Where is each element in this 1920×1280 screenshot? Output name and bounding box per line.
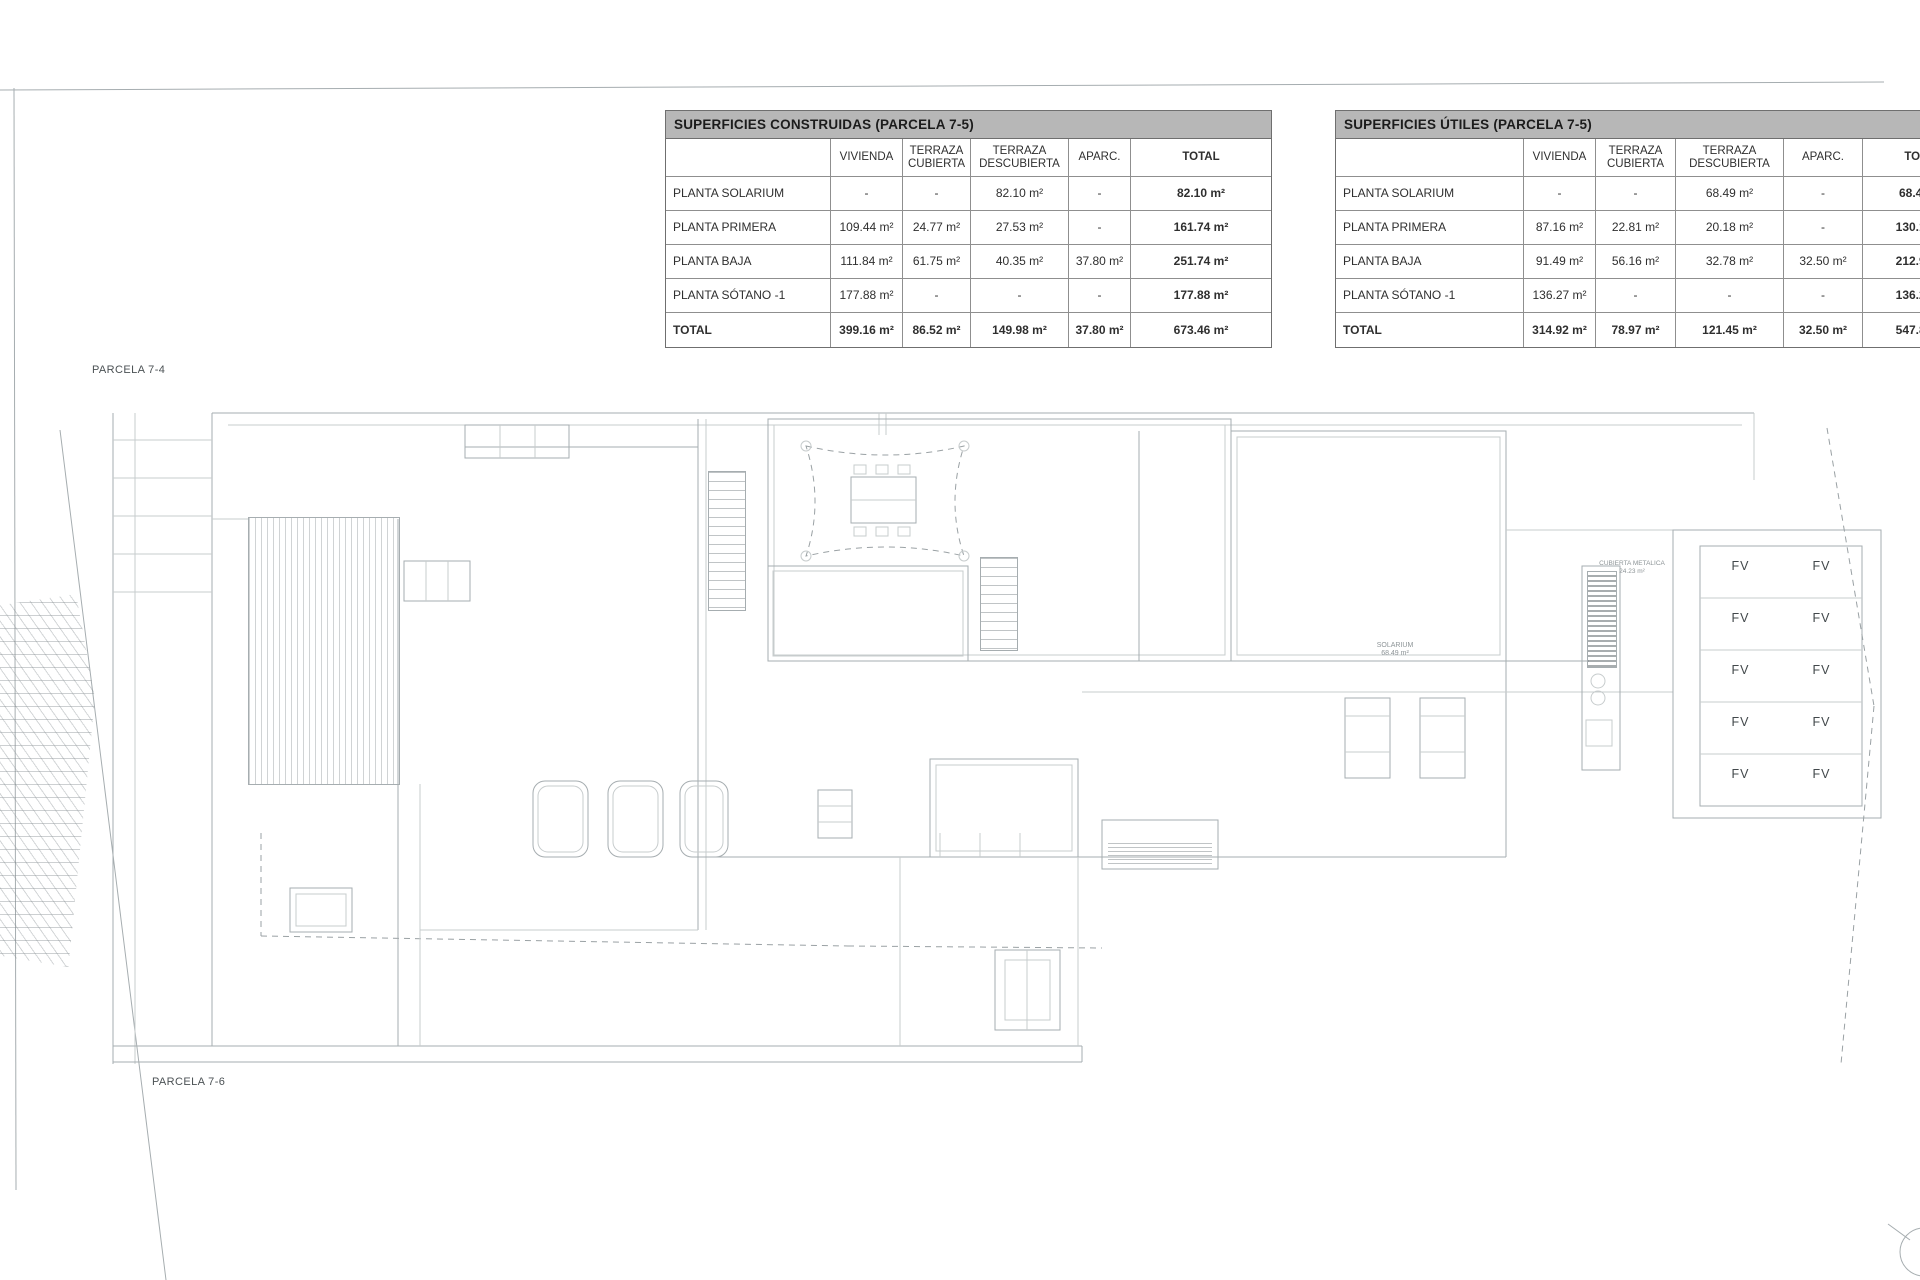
fv-panel-array: FVFVFVFVFVFVFVFVFVFV [1700, 540, 1862, 802]
table-cell: 32.50 m² [1784, 313, 1863, 347]
table-title: SUPERFICIES ÚTILES (PARCELA 7-5) [1336, 111, 1920, 139]
row-label: PLANTA SOLARIUM [666, 177, 831, 211]
fv-panel-label: FV [1700, 644, 1781, 696]
row-label: TOTAL [1336, 313, 1524, 347]
table-cell: 27.53 m² [971, 211, 1069, 245]
table-cell: 37.80 m² [1069, 313, 1131, 347]
table-cell: 82.10 m² [1131, 177, 1271, 211]
table-row: TOTAL314.92 m²78.97 m²121.45 m²32.50 m²5… [1336, 313, 1920, 347]
table-cell: 87.16 m² [1524, 211, 1596, 245]
table-header-row: VIVIENDATERRAZA CUBIERTATERRAZA DESCUBIE… [666, 139, 1271, 177]
table-grid: VIVIENDATERRAZA CUBIERTATERRAZA DESCUBIE… [666, 139, 1271, 347]
outdoor-kitchen-grill [1587, 571, 1617, 668]
column-header: TOTAL [1863, 139, 1920, 177]
stair-terrace [980, 557, 1018, 651]
row-label: TOTAL [666, 313, 831, 347]
table-cell: 161.74 m² [1131, 211, 1271, 245]
table-cell: 121.45 m² [1676, 313, 1784, 347]
cubierta-note-area: 24.23 m² [1593, 568, 1671, 576]
ventilation-grate [1108, 843, 1212, 864]
table-cell: 399.16 m² [831, 313, 903, 347]
fv-panel-label: FV [1781, 540, 1862, 592]
table-cell: - [1676, 279, 1784, 313]
table-row: PLANTA SOLARIUM--68.49 m²-68.49 m² [1336, 177, 1920, 211]
table-grid: VIVIENDATERRAZA CUBIERTATERRAZA DESCUBIE… [1336, 139, 1920, 347]
row-label: PLANTA PRIMERA [666, 211, 831, 245]
stair-west [708, 471, 746, 611]
table-cell: - [1784, 177, 1863, 211]
fv-panel-label: FV [1700, 696, 1781, 748]
table-row: PLANTA PRIMERA87.16 m²22.81 m²20.18 m²-1… [1336, 211, 1920, 245]
table-row: PLANTA BAJA111.84 m²61.75 m²40.35 m²37.8… [666, 245, 1271, 279]
row-label: PLANTA SÓTANO -1 [1336, 279, 1524, 313]
column-header: APARC. [1069, 139, 1131, 177]
table-cell: 86.52 m² [903, 313, 971, 347]
column-header: VIVIENDA [831, 139, 903, 177]
table-cell: 32.50 m² [1784, 245, 1863, 279]
cubierta-note-title: CUBIERTA METALICA [1593, 560, 1671, 568]
table-cell: 56.16 m² [1596, 245, 1676, 279]
parcela-76-label: PARCELA 7-6 [152, 1076, 225, 1088]
table-cell: - [1784, 279, 1863, 313]
table-cell: 82.10 m² [971, 177, 1069, 211]
rubble-wall-hatch [0, 594, 95, 967]
table-row: PLANTA SÓTANO -1177.88 m²---177.88 m² [666, 279, 1271, 313]
table-cell: 212.93 m² [1863, 245, 1920, 279]
parcela-74-label: PARCELA 7-4 [92, 364, 165, 376]
table-superficies-utiles: SUPERFICIES ÚTILES (PARCELA 7-5) VIVIEND… [1335, 110, 1920, 348]
table-cell: - [1069, 177, 1131, 211]
table-cell: - [1069, 211, 1131, 245]
fv-panel-label: FV [1781, 592, 1862, 644]
table-cell: - [1596, 177, 1676, 211]
solarium-note-title: SOLARIUM [1350, 642, 1440, 650]
table-cell: 24.77 m² [903, 211, 971, 245]
table-cell: 68.49 m² [1676, 177, 1784, 211]
table-cell: - [1069, 279, 1131, 313]
column-header [666, 139, 831, 177]
table-cell: 136.27 m² [1524, 279, 1596, 313]
fv-panel-label: FV [1700, 748, 1781, 800]
table-cell: 136.27 m² [1863, 279, 1920, 313]
table-cell: 130.15 m² [1863, 211, 1920, 245]
fv-panel-label: FV [1700, 592, 1781, 644]
table-title: SUPERFICIES CONSTRUIDAS (PARCELA 7-5) [666, 111, 1271, 139]
table-cell: 314.92 m² [1524, 313, 1596, 347]
table-cell: - [1596, 279, 1676, 313]
row-label: PLANTA BAJA [1336, 245, 1524, 279]
column-header: TERRAZA CUBIERTA [903, 139, 971, 177]
pergola-louvres [248, 517, 400, 785]
row-label: PLANTA SÓTANO -1 [666, 279, 831, 313]
table-cell: - [1784, 211, 1863, 245]
table-header-row: VIVIENDATERRAZA CUBIERTATERRAZA DESCUBIE… [1336, 139, 1920, 177]
fv-panel-label: FV [1781, 748, 1862, 800]
table-cell: 111.84 m² [831, 245, 903, 279]
column-header: TERRAZA DESCUBIERTA [971, 139, 1069, 177]
table-cell: 61.75 m² [903, 245, 971, 279]
table-row: PLANTA SOLARIUM--82.10 m²-82.10 m² [666, 177, 1271, 211]
cubierta-note: CUBIERTA METALICA 24.23 m² [1593, 560, 1671, 575]
column-header: APARC. [1784, 139, 1863, 177]
table-cell: 91.49 m² [1524, 245, 1596, 279]
table-cell: 251.74 m² [1131, 245, 1271, 279]
table-cell: 673.46 m² [1131, 313, 1271, 347]
table-cell: 547.84 m² [1863, 313, 1920, 347]
table-cell: - [903, 279, 971, 313]
table-cell: 78.97 m² [1596, 313, 1676, 347]
table-cell: - [1524, 177, 1596, 211]
table-cell: 177.88 m² [831, 279, 903, 313]
column-header: TERRAZA DESCUBIERTA [1676, 139, 1784, 177]
table-cell: 68.49 m² [1863, 177, 1920, 211]
table-cell: 37.80 m² [1069, 245, 1131, 279]
table-cell: 32.78 m² [1676, 245, 1784, 279]
table-cell: 177.88 m² [1131, 279, 1271, 313]
row-label: PLANTA PRIMERA [1336, 211, 1524, 245]
column-header: TOTAL [1131, 139, 1271, 177]
table-cell: 40.35 m² [971, 245, 1069, 279]
table-row: PLANTA PRIMERA109.44 m²24.77 m²27.53 m²-… [666, 211, 1271, 245]
fv-panel-label: FV [1781, 644, 1862, 696]
row-label: PLANTA BAJA [666, 245, 831, 279]
column-header: VIVIENDA [1524, 139, 1596, 177]
solarium-note: SOLARIUM 68.49 m² [1350, 642, 1440, 658]
row-label: PLANTA SOLARIUM [1336, 177, 1524, 211]
table-cell: 109.44 m² [831, 211, 903, 245]
fv-panel-label: FV [1700, 540, 1781, 592]
fv-panel-label: FV [1781, 696, 1862, 748]
table-row: PLANTA BAJA91.49 m²56.16 m²32.78 m²32.50… [1336, 245, 1920, 279]
column-header: TERRAZA CUBIERTA [1596, 139, 1676, 177]
table-cell: 20.18 m² [1676, 211, 1784, 245]
table-row: PLANTA SÓTANO -1136.27 m²---136.27 m² [1336, 279, 1920, 313]
table-cell: - [831, 177, 903, 211]
table-cell: 149.98 m² [971, 313, 1069, 347]
table-row: TOTAL399.16 m²86.52 m²149.98 m²37.80 m²6… [666, 313, 1271, 347]
floor-plan-sheet: FVFVFVFVFVFVFVFVFVFV PARCELA 7-4 PARCELA… [0, 0, 1920, 1280]
table-cell: - [971, 279, 1069, 313]
table-cell: 22.81 m² [1596, 211, 1676, 245]
table-superficies-construidas: SUPERFICIES CONSTRUIDAS (PARCELA 7-5) VI… [665, 110, 1272, 348]
table-cell: - [903, 177, 971, 211]
solarium-note-area: 68.49 m² [1350, 650, 1440, 658]
column-header [1336, 139, 1524, 177]
